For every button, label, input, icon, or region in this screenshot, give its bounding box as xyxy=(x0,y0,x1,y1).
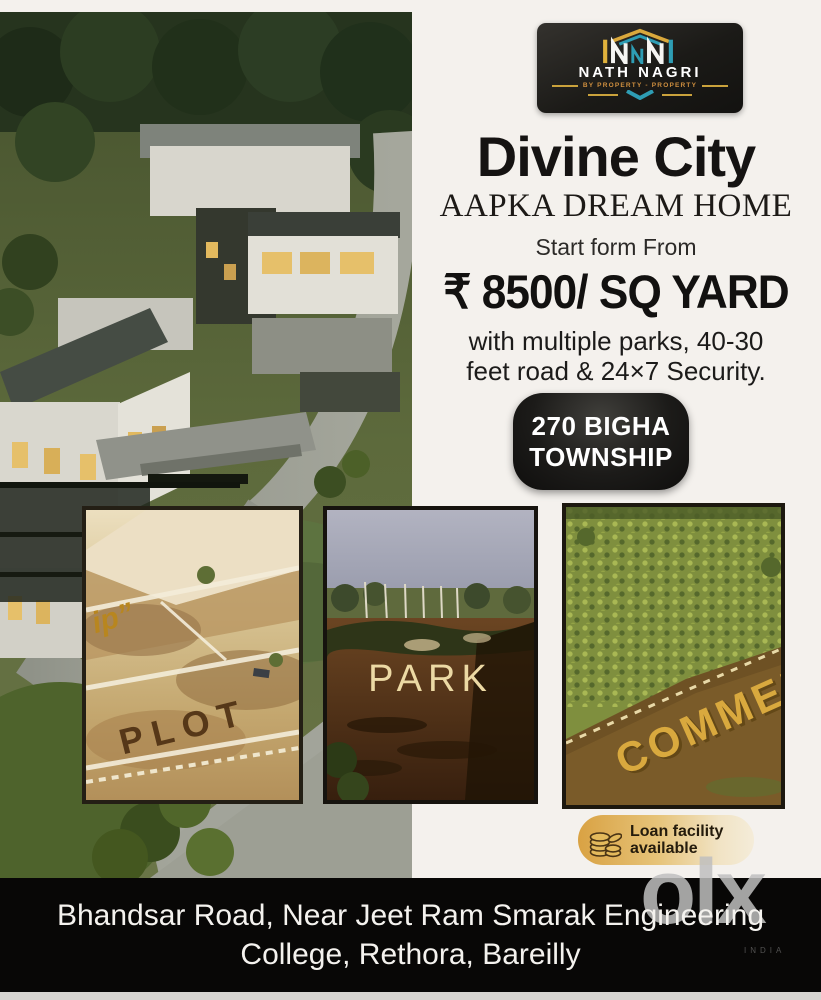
plot-photo-art xyxy=(86,510,299,800)
park-label: PARK xyxy=(327,658,534,701)
address-line-2: College, Rethora, Bareilly xyxy=(0,935,821,974)
project-title: Divine City xyxy=(411,124,821,189)
features-line-2: feet road & 24×7 Security. xyxy=(411,356,821,386)
address-text: Bhandsar Road, Near Jeet Ram Smarak Engi… xyxy=(0,896,821,974)
coins-icon xyxy=(588,822,622,858)
loan-text-line-1: Loan facility xyxy=(630,823,723,840)
badge-line-1: 270 BIGHA xyxy=(532,411,671,442)
township-size-badge: 270 BIGHA TOWNSHIP xyxy=(513,393,689,490)
bottom-strip xyxy=(0,992,821,1000)
commercial-photo: COMMERCIAL xyxy=(562,503,785,809)
badge-line-2: TOWNSHIP xyxy=(529,442,673,473)
price-intro-label: Start form From xyxy=(411,234,821,261)
ad-poster: NATH NAGRI BY PROPERTY - PROPERTY Divine… xyxy=(0,0,821,1000)
plot-photo: ip” PLOT xyxy=(82,506,303,804)
features-text: with multiple parks, 40-30 feet road & 2… xyxy=(411,326,821,386)
address-line-1: Bhandsar Road, Near Jeet Ram Smarak Engi… xyxy=(0,896,821,935)
price-per-sq-yard: ₹ 8500/ SQ YARD xyxy=(423,264,808,320)
park-photo: PARK xyxy=(323,506,538,804)
features-line-1: with multiple parks, 40-30 xyxy=(411,326,821,356)
park-photo-art xyxy=(327,510,534,800)
project-subtitle: AAPKA DREAM HOME xyxy=(411,188,821,225)
